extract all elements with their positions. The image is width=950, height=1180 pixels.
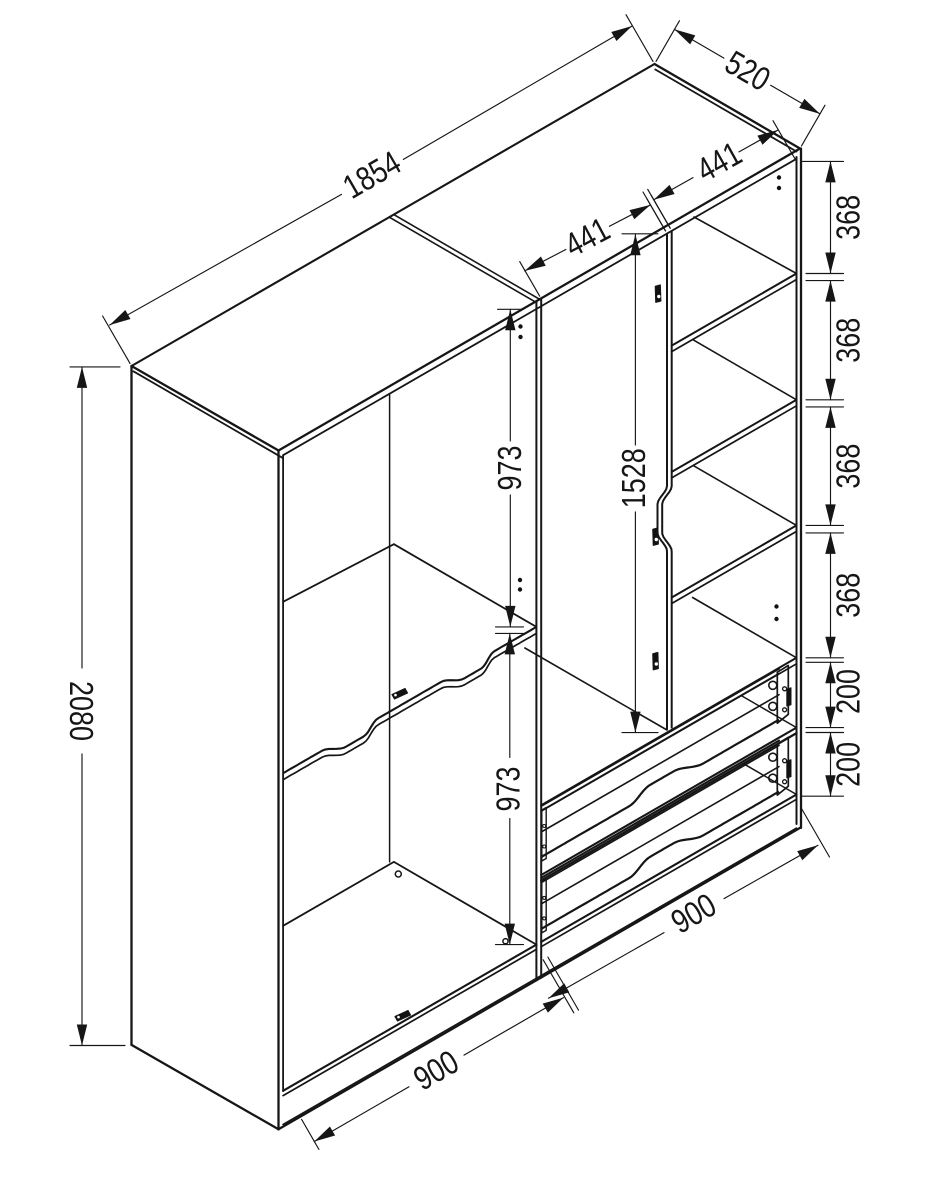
svg-text:200: 200 bbox=[831, 669, 868, 714]
svg-text:368: 368 bbox=[831, 444, 868, 489]
svg-text:973: 973 bbox=[491, 767, 528, 812]
svg-text:368: 368 bbox=[831, 318, 868, 363]
svg-text:200: 200 bbox=[831, 742, 868, 787]
svg-text:368: 368 bbox=[831, 195, 868, 240]
svg-text:1528: 1528 bbox=[616, 448, 653, 508]
svg-text:2080: 2080 bbox=[62, 681, 99, 741]
svg-text:368: 368 bbox=[831, 573, 868, 618]
svg-text:973: 973 bbox=[492, 446, 529, 491]
